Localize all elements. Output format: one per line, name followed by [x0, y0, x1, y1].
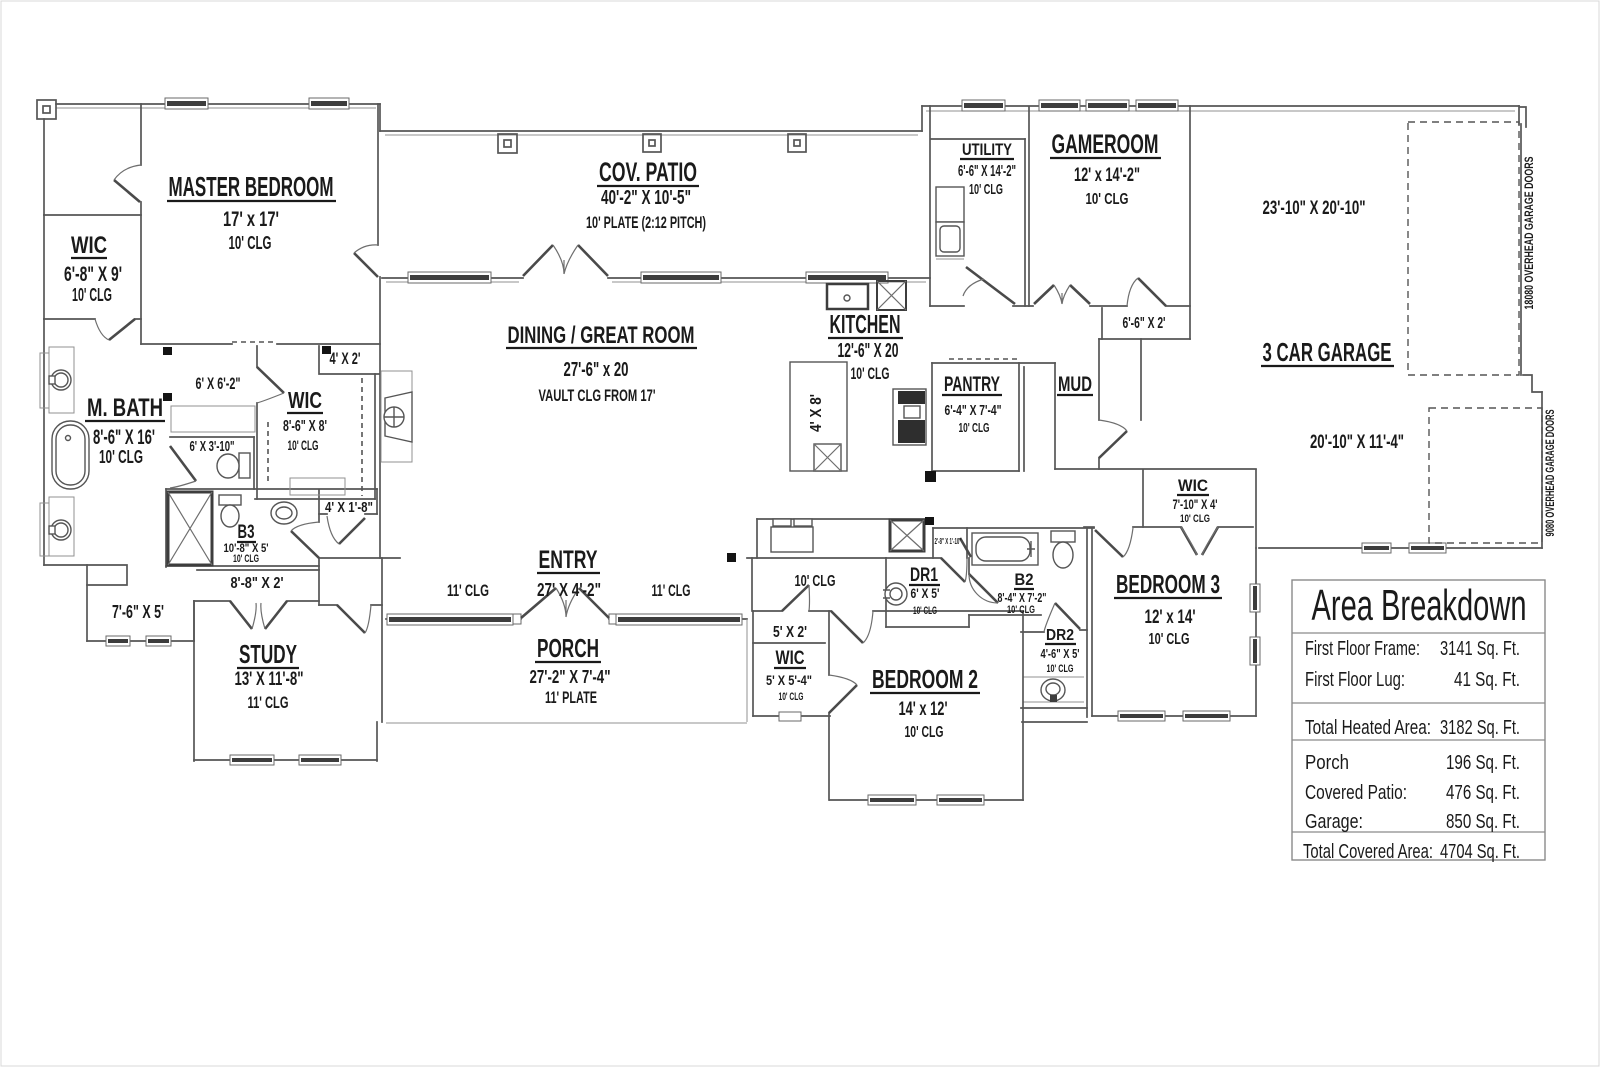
- svg-text:7'-10" X 4': 7'-10" X 4': [1173, 496, 1218, 512]
- svg-text:850 Sq. Ft.: 850 Sq. Ft.: [1446, 811, 1520, 833]
- svg-text:6'-4" X 7'-4": 6'-4" X 7'-4": [945, 402, 1002, 419]
- svg-text:6' X 3'-10": 6' X 3'-10": [190, 438, 235, 455]
- svg-text:10' PLATE (2:12 PITCH): 10' PLATE (2:12 PITCH): [586, 213, 706, 232]
- svg-text:DR2: DR2: [1046, 627, 1074, 644]
- svg-text:10' CLG: 10' CLG: [1149, 631, 1190, 648]
- svg-text:Garage:: Garage:: [1305, 811, 1363, 833]
- svg-text:First Floor Lug:: First Floor Lug:: [1305, 669, 1405, 691]
- svg-text:10' CLG: 10' CLG: [72, 285, 112, 305]
- svg-text:41 Sq. Ft.: 41 Sq. Ft.: [1454, 669, 1520, 691]
- svg-text:12' x 14': 12' x 14': [1145, 607, 1196, 628]
- svg-text:6'-8" X 9': 6'-8" X 9': [64, 263, 122, 286]
- svg-text:3182 Sq. Ft.: 3182 Sq. Ft.: [1440, 717, 1520, 739]
- svg-text:476 Sq. Ft.: 476 Sq. Ft.: [1446, 782, 1520, 804]
- svg-text:6'-6" X 2': 6'-6" X 2': [1123, 315, 1166, 332]
- svg-text:KITCHEN: KITCHEN: [830, 309, 901, 339]
- svg-text:4' X 1'-8": 4' X 1'-8": [325, 499, 373, 516]
- svg-text:12'-6" X 20: 12'-6" X 20: [838, 340, 899, 362]
- svg-text:10' CLG: 10' CLG: [288, 437, 319, 453]
- svg-text:6'-6" X 14'-2": 6'-6" X 14'-2": [958, 163, 1016, 180]
- svg-text:10' CLG: 10' CLG: [233, 553, 259, 565]
- svg-text:10' CLG: 10' CLG: [913, 605, 937, 617]
- svg-text:27'-6" x 20: 27'-6" x 20: [564, 359, 629, 381]
- svg-text:14' x 12': 14' x 12': [899, 699, 948, 720]
- svg-text:13' X 11'-8": 13' X 11'-8": [235, 669, 304, 690]
- svg-text:4'-6" X 5': 4'-6" X 5': [1041, 646, 1080, 661]
- svg-text:Area Breakdown: Area Breakdown: [1312, 581, 1527, 630]
- svg-text:10' CLG: 10' CLG: [1007, 604, 1035, 616]
- svg-text:18080 OVERHEAD GARAGE DOORS: 18080 OVERHEAD GARAGE DOORS: [1522, 157, 1536, 310]
- svg-text:12' x 14'-2": 12' x 14'-2": [1074, 165, 1140, 186]
- svg-text:5' X 2': 5' X 2': [773, 624, 807, 641]
- svg-text:2'-8" X 1'-10": 2'-8" X 1'-10": [935, 537, 962, 546]
- svg-text:3141 Sq. Ft.: 3141 Sq. Ft.: [1440, 638, 1520, 660]
- svg-text:8'-8" X 2': 8'-8" X 2': [231, 575, 284, 592]
- svg-text:10' CLG: 10' CLG: [851, 364, 890, 383]
- svg-text:10' CLG: 10' CLG: [1180, 513, 1210, 525]
- svg-text:PANTRY: PANTRY: [944, 373, 1000, 396]
- svg-text:B2: B2: [1015, 570, 1034, 589]
- svg-text:4' X 8': 4' X 8': [808, 394, 825, 432]
- svg-text:10' CLG: 10' CLG: [959, 420, 990, 435]
- svg-text:27'-2" X 7'-4": 27'-2" X 7'-4": [530, 667, 611, 687]
- svg-text:196 Sq. Ft.: 196 Sq. Ft.: [1446, 752, 1520, 774]
- svg-text:23'-10" X 20'-10": 23'-10" X 20'-10": [1263, 198, 1366, 219]
- svg-text:4704 Sq. Ft.: 4704 Sq. Ft.: [1440, 841, 1520, 863]
- svg-text:MASTER BEDROOM: MASTER BEDROOM: [169, 171, 334, 202]
- svg-text:20'-10" X 11'-4": 20'-10" X 11'-4": [1310, 432, 1404, 453]
- svg-text:10' CLG: 10' CLG: [229, 233, 272, 253]
- svg-text:8'-6" X 8': 8'-6" X 8': [283, 418, 327, 435]
- svg-text:11' CLG: 11' CLG: [652, 581, 691, 600]
- svg-text:40'-2" X 10'-5": 40'-2" X 10'-5": [601, 187, 691, 209]
- svg-text:PORCH: PORCH: [537, 633, 599, 663]
- svg-text:WIC: WIC: [288, 387, 322, 413]
- svg-text:3 CAR GARAGE: 3 CAR GARAGE: [1263, 337, 1392, 367]
- svg-text:10' CLG: 10' CLG: [1047, 663, 1074, 675]
- svg-text:Total Heated Area:: Total Heated Area:: [1305, 717, 1431, 739]
- svg-text:WIC: WIC: [71, 232, 107, 259]
- svg-text:10' CLG: 10' CLG: [969, 181, 1003, 198]
- svg-text:10' CLG: 10' CLG: [1086, 191, 1129, 208]
- svg-text:10' CLG: 10' CLG: [99, 447, 143, 467]
- svg-text:WIC: WIC: [1178, 476, 1208, 495]
- svg-text:GAMEROOM: GAMEROOM: [1052, 129, 1159, 159]
- svg-text:BEDROOM 2: BEDROOM 2: [872, 664, 978, 694]
- svg-text:BEDROOM 3: BEDROOM 3: [1116, 569, 1220, 599]
- svg-text:WIC: WIC: [776, 648, 805, 669]
- svg-text:First Floor Frame:: First Floor Frame:: [1305, 638, 1420, 660]
- svg-text:Covered Patio:: Covered Patio:: [1305, 782, 1407, 804]
- svg-text:10' CLG: 10' CLG: [905, 724, 944, 741]
- svg-text:ENTRY: ENTRY: [539, 546, 598, 574]
- svg-text:10' CLG: 10' CLG: [795, 573, 836, 590]
- svg-text:6' X 6'-2": 6' X 6'-2": [196, 374, 241, 393]
- svg-text:B3: B3: [238, 522, 255, 543]
- svg-text:11' PLATE: 11' PLATE: [545, 688, 597, 707]
- svg-text:Porch: Porch: [1305, 752, 1349, 774]
- svg-text:9080 OVERHEAD GARAGE DOORS: 9080 OVERHEAD GARAGE DOORS: [1543, 410, 1557, 537]
- svg-text:MUD: MUD: [1058, 373, 1092, 396]
- svg-text:8'-4" X 7'-2": 8'-4" X 7'-2": [998, 590, 1047, 605]
- svg-text:11' CLG: 11' CLG: [248, 693, 289, 712]
- svg-text:27' X 4'-2": 27' X 4'-2": [537, 580, 601, 600]
- svg-text:Total Covered Area:: Total Covered Area:: [1303, 841, 1433, 863]
- svg-text:VAULT CLG FROM 17': VAULT CLG FROM 17': [539, 386, 656, 405]
- svg-text:11' CLG: 11' CLG: [447, 581, 489, 600]
- svg-text:10' CLG: 10' CLG: [779, 691, 804, 703]
- svg-text:5' X 5'-4": 5' X 5'-4": [766, 672, 812, 688]
- svg-text:17' x 17': 17' x 17': [223, 208, 279, 231]
- svg-text:8'-6" X 16': 8'-6" X 16': [93, 426, 155, 449]
- svg-text:M. BATH: M. BATH: [87, 394, 163, 422]
- svg-text:UTILITY: UTILITY: [962, 140, 1013, 159]
- svg-text:DINING / GREAT ROOM: DINING / GREAT ROOM: [508, 322, 695, 349]
- svg-text:DR1: DR1: [910, 565, 938, 586]
- svg-text:6' X 5': 6' X 5': [911, 585, 940, 601]
- svg-text:STUDY: STUDY: [239, 639, 297, 669]
- svg-text:7'-6" X 5': 7'-6" X 5': [112, 602, 164, 622]
- svg-text:4' X 2': 4' X 2': [330, 349, 361, 368]
- svg-text:COV. PATIO: COV. PATIO: [599, 157, 697, 187]
